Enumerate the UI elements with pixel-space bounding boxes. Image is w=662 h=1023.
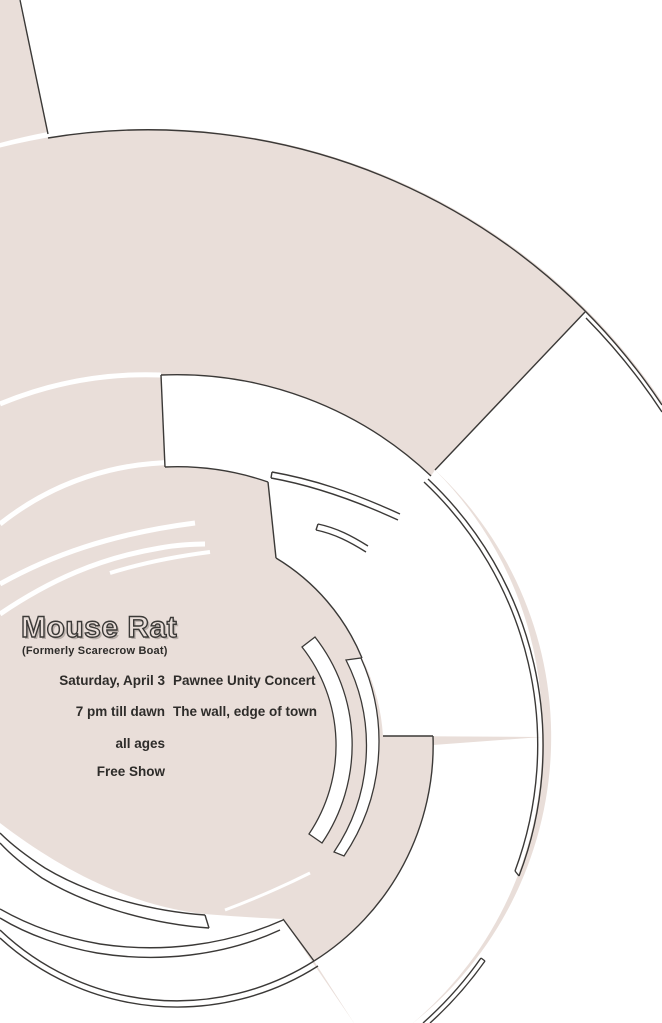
event-price: Free Show [0,764,165,779]
event-row-date-name: Saturday, April 3 Pawnee Unity Concert [0,673,360,689]
event-row-time-venue: 7 pm till dawn The wall, edge of town [0,704,360,720]
band-former-name: (Formerly Scarecrow Boat) [22,645,168,657]
poster: Mouse Rat (Formerly Scarecrow Boat) Satu… [0,0,662,1023]
band-name: Mouse Rat [21,612,177,644]
event-admission: all ages [0,736,165,751]
event-row-admission: all ages [0,736,360,752]
event-time: 7 pm till dawn [0,704,165,719]
event-row-price: Free Show [0,764,360,780]
event-name: Pawnee Unity Concert [173,673,316,688]
concentric-circles-artwork [0,0,662,1023]
event-venue: The wall, edge of town [173,704,317,719]
event-date: Saturday, April 3 [0,673,165,688]
